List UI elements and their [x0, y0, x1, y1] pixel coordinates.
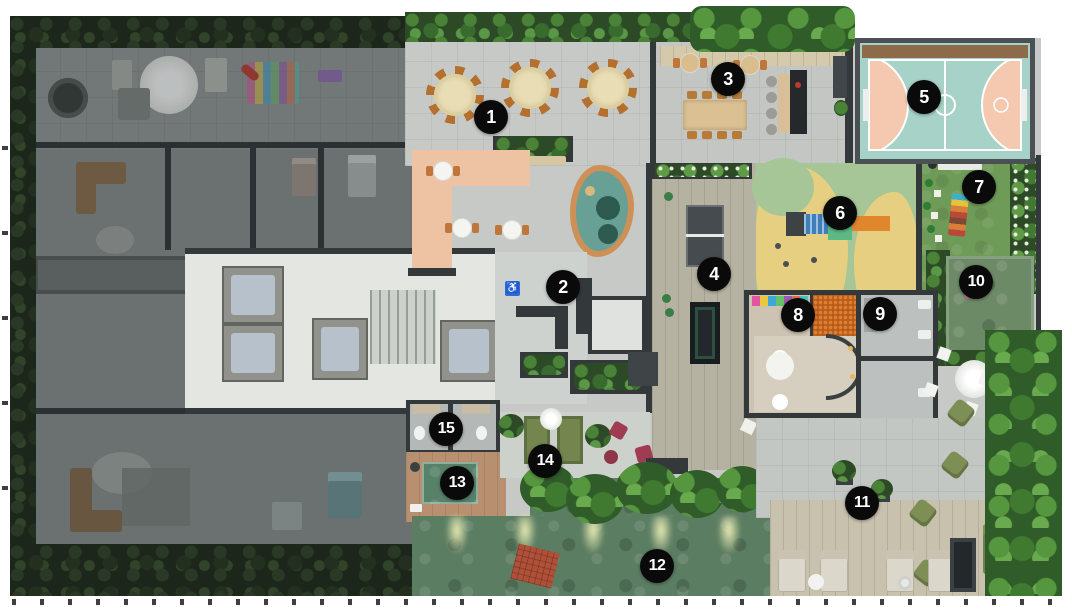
unit-wall — [165, 142, 171, 250]
sports-court-graphic — [855, 38, 1035, 164]
vanity-counter — [412, 404, 440, 414]
changing-wall — [856, 356, 938, 361]
sofa — [70, 510, 122, 532]
elevator — [312, 318, 368, 380]
wc-fixture — [918, 300, 931, 309]
survey-ticks-bottom — [12, 599, 1062, 605]
banquet-table — [501, 59, 559, 117]
terrace-lounger — [112, 60, 132, 90]
storage-cabinet — [628, 352, 658, 386]
marker-13[interactable]: 13 — [440, 466, 474, 500]
pool-plants — [616, 462, 678, 514]
relax-parasol — [540, 408, 562, 430]
pool-plants — [566, 474, 624, 524]
cafe-wall — [408, 268, 456, 276]
indoor-plant — [834, 100, 848, 116]
cooktop — [795, 82, 801, 88]
marker-10[interactable]: 10 — [959, 265, 993, 299]
side-table-round — [898, 576, 912, 590]
dining-table-round — [96, 226, 134, 254]
lounge-pouf — [596, 196, 620, 220]
side-table-round — [808, 574, 824, 590]
pantry-room — [588, 296, 646, 354]
stool — [664, 192, 673, 201]
marker-1[interactable]: 1 — [474, 100, 508, 134]
kids-table — [318, 70, 342, 82]
playground-green-inlet — [752, 158, 814, 216]
bar-island — [790, 70, 807, 134]
corridor-wall — [516, 306, 568, 317]
bed — [328, 472, 362, 518]
lounge-pouf — [598, 224, 618, 244]
marker-8[interactable]: 8 — [781, 298, 815, 332]
bed — [292, 158, 316, 196]
pool-light — [576, 516, 610, 574]
marker-15[interactable]: 15 — [429, 412, 463, 446]
cafe-table — [434, 162, 452, 180]
banquet-table — [579, 59, 637, 117]
marker-3[interactable]: 3 — [711, 62, 745, 96]
games-planter — [655, 164, 749, 177]
gourmet-wall — [650, 36, 656, 166]
party-table — [766, 352, 794, 380]
marker-4[interactable]: 4 — [697, 257, 731, 291]
unit-wall — [250, 142, 256, 250]
tropical-border-right — [985, 330, 1062, 596]
bistro-table — [741, 56, 759, 74]
marker-6[interactable]: 6 — [823, 196, 857, 230]
elevator — [222, 324, 284, 382]
cafe-table — [503, 221, 521, 239]
relax-plant — [585, 424, 611, 448]
string-light — [848, 346, 853, 351]
marker-5[interactable]: 5 — [907, 80, 941, 114]
stairwell — [370, 290, 436, 364]
elevator — [440, 320, 498, 382]
accessible-wc-icon: ♿ — [505, 281, 520, 296]
sun-lounger — [820, 550, 848, 592]
potted-plant — [832, 460, 856, 482]
long-dining-table — [683, 100, 747, 130]
table-tennis-net — [686, 234, 724, 237]
terrace-lounger — [205, 58, 227, 92]
survey-ticks-left — [2, 110, 8, 490]
marker-9[interactable]: 9 — [863, 297, 897, 331]
marker-12[interactable]: 12 — [640, 549, 674, 583]
child-figure — [775, 243, 781, 249]
elevator — [222, 266, 284, 324]
corridor-wall — [555, 317, 568, 349]
sofa — [76, 162, 96, 214]
dining-chair — [687, 131, 697, 139]
lawn-toy — [925, 179, 933, 187]
relax-plant — [498, 414, 524, 438]
play-beam-orange — [852, 216, 890, 231]
marker-7[interactable]: 7 — [962, 170, 996, 204]
bg-mask — [855, 0, 1072, 38]
unit-wall — [34, 142, 415, 148]
bed — [272, 502, 302, 530]
spa-tray — [410, 462, 420, 472]
fire-pit — [48, 78, 88, 118]
hedge-bottom-left — [10, 544, 415, 596]
toilet — [414, 426, 425, 440]
bistro-table — [681, 54, 699, 72]
marker-11[interactable]: 11 — [845, 486, 879, 520]
bar-counter — [778, 74, 790, 132]
stool — [662, 294, 671, 303]
sun-lounger — [778, 550, 806, 592]
kitchen-counter — [34, 256, 189, 294]
pool-light — [440, 516, 474, 574]
hedge-top-center — [405, 12, 705, 42]
kids-play-mat — [247, 62, 299, 104]
floor-plan: ♿ — [0, 0, 1072, 609]
hedge-left-edge — [10, 16, 36, 596]
billiards-table — [690, 302, 720, 364]
unit-wall — [318, 142, 324, 250]
spa-towel — [410, 504, 422, 512]
play-structure-base — [786, 212, 806, 236]
hedge-top-left — [10, 16, 415, 48]
lounge-side-table — [585, 186, 595, 196]
terrace-table — [118, 88, 150, 120]
toilet — [476, 426, 487, 440]
cafe-table — [453, 219, 471, 237]
corridor-planter — [523, 354, 565, 375]
bed — [348, 155, 376, 197]
fire-table — [950, 538, 976, 592]
marker-2[interactable]: 2 — [546, 270, 580, 304]
trees-top — [690, 6, 855, 52]
crimson-pouf — [604, 450, 618, 464]
vanity-counter — [462, 404, 490, 414]
dining-chair — [687, 91, 697, 99]
bar-stool — [766, 76, 777, 87]
bg-mask — [1041, 14, 1072, 330]
cabinets — [833, 56, 847, 98]
rug — [122, 468, 190, 526]
marker-14[interactable]: 14 — [528, 444, 562, 478]
pool-light — [712, 516, 746, 574]
lawn-cube — [934, 190, 941, 197]
